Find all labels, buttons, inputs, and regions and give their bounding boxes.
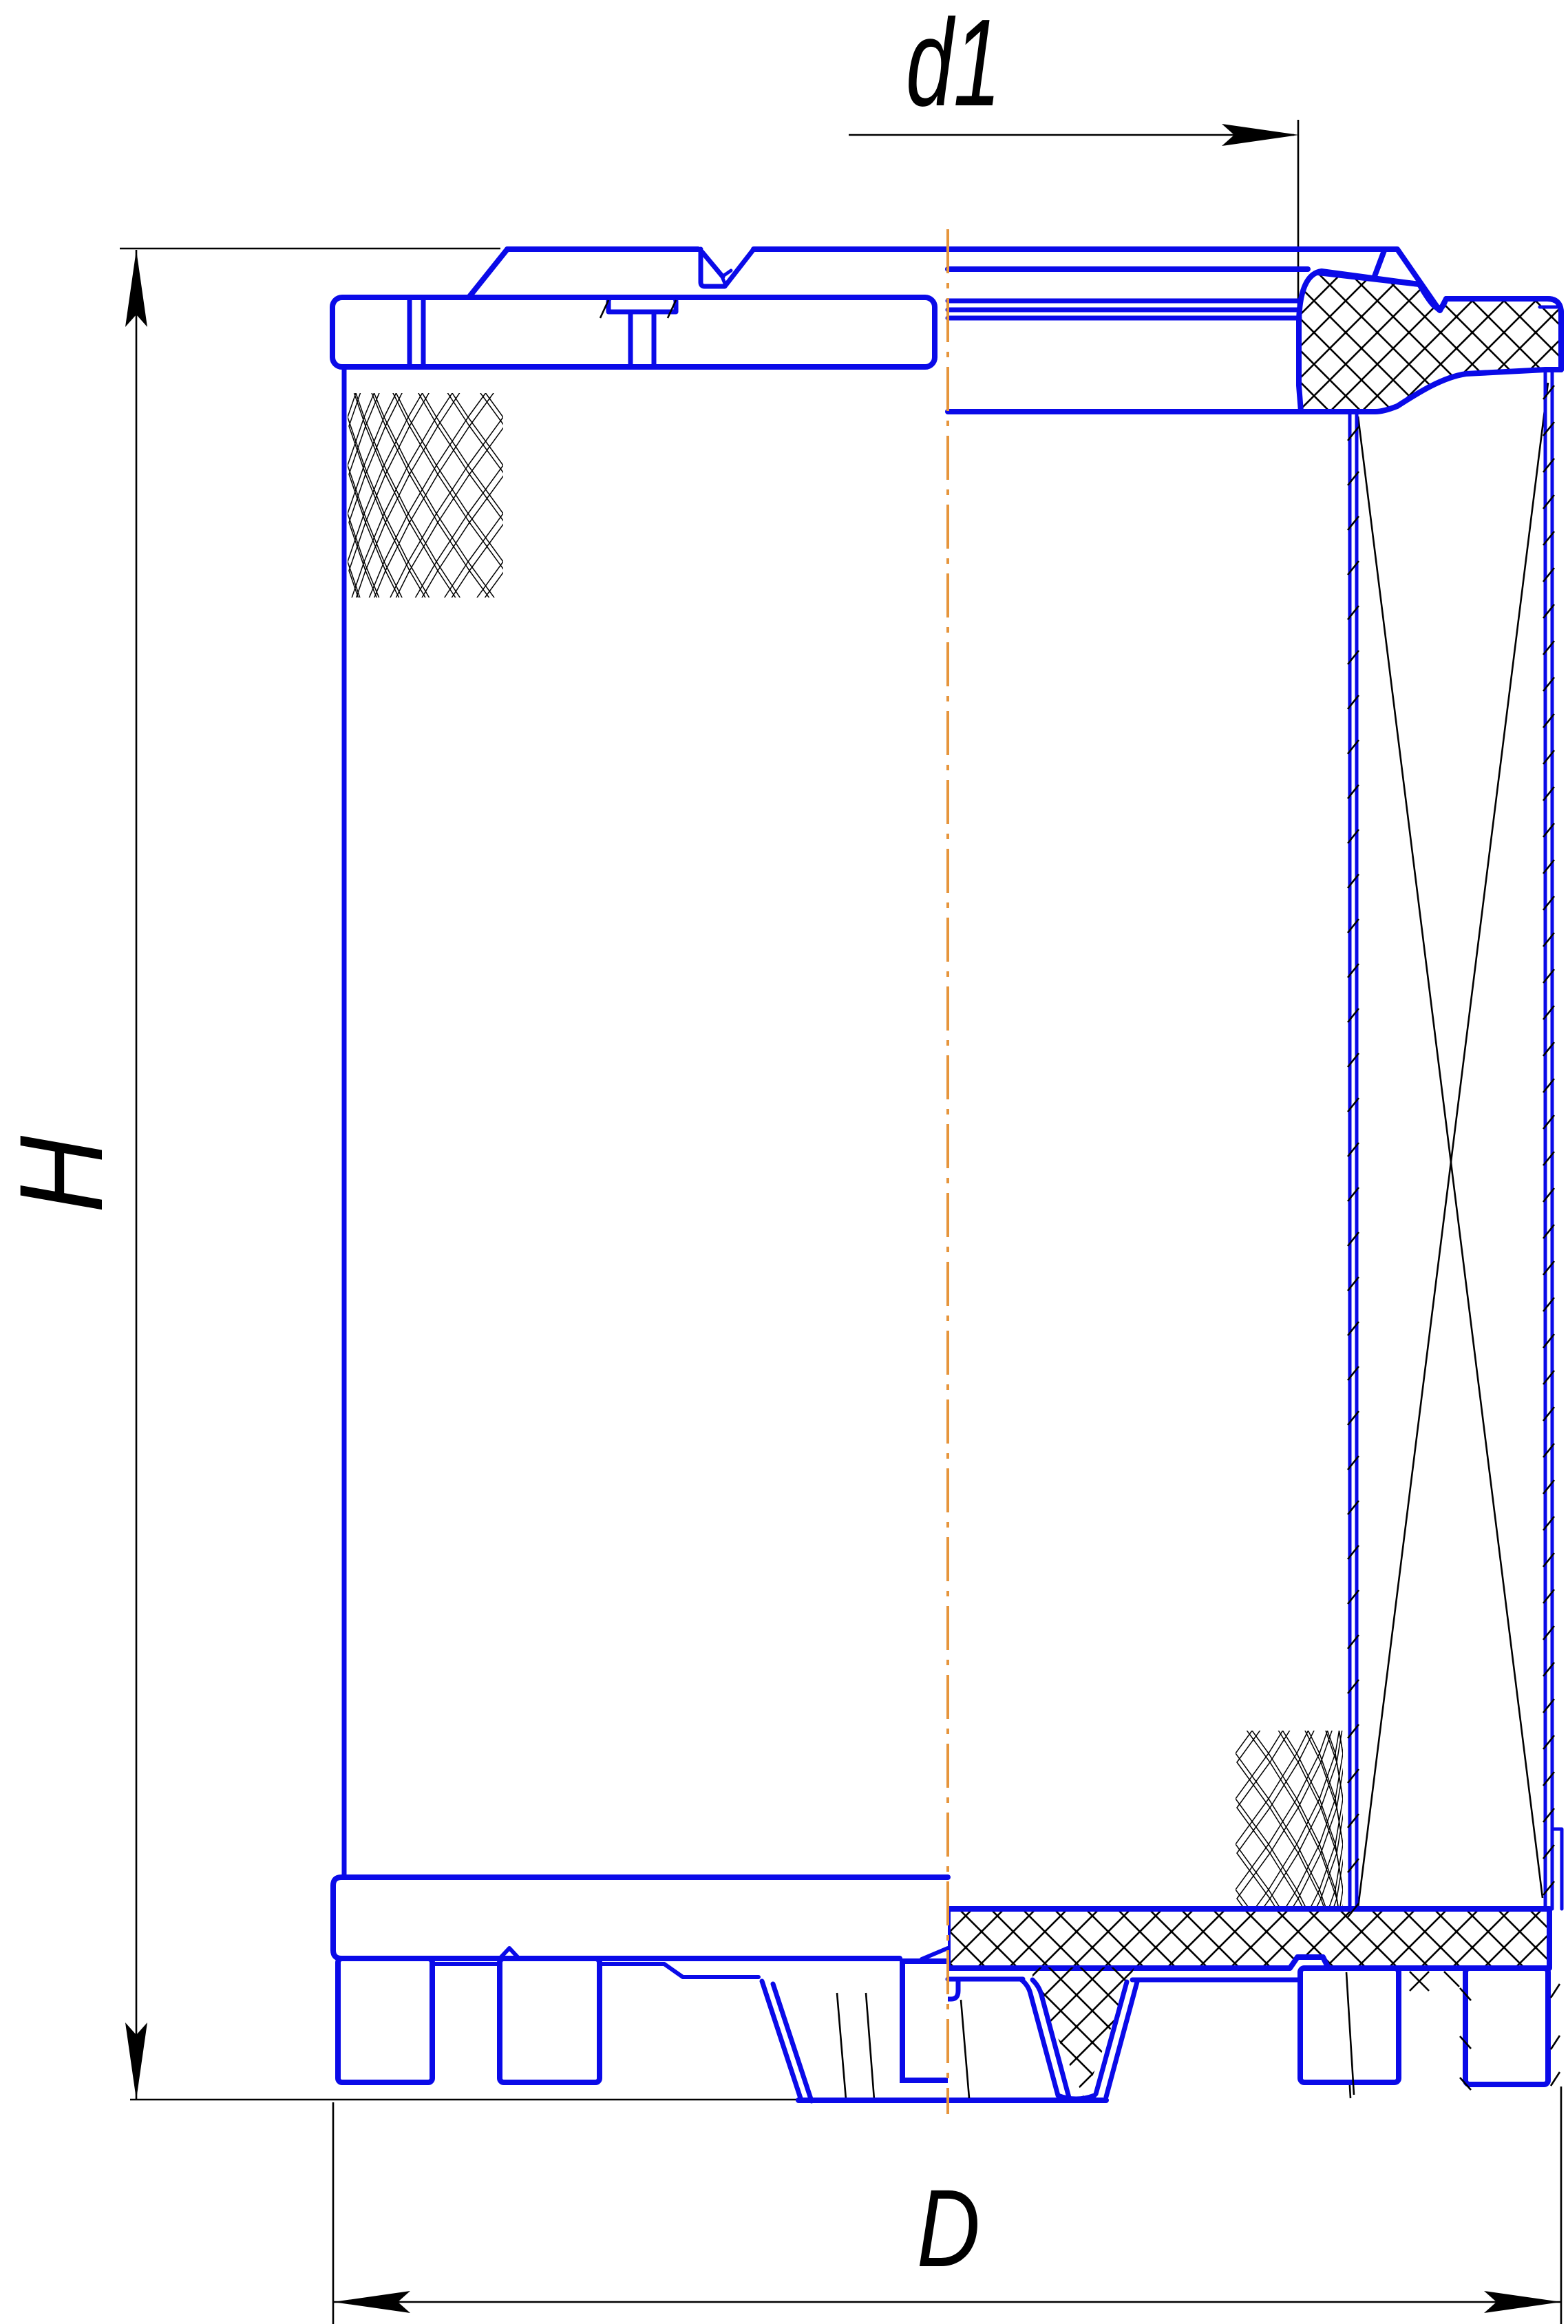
- svg-text:D: D: [917, 2166, 980, 2290]
- svg-text:H: H: [0, 1135, 127, 1213]
- svg-text:d1: d1: [906, 0, 1001, 132]
